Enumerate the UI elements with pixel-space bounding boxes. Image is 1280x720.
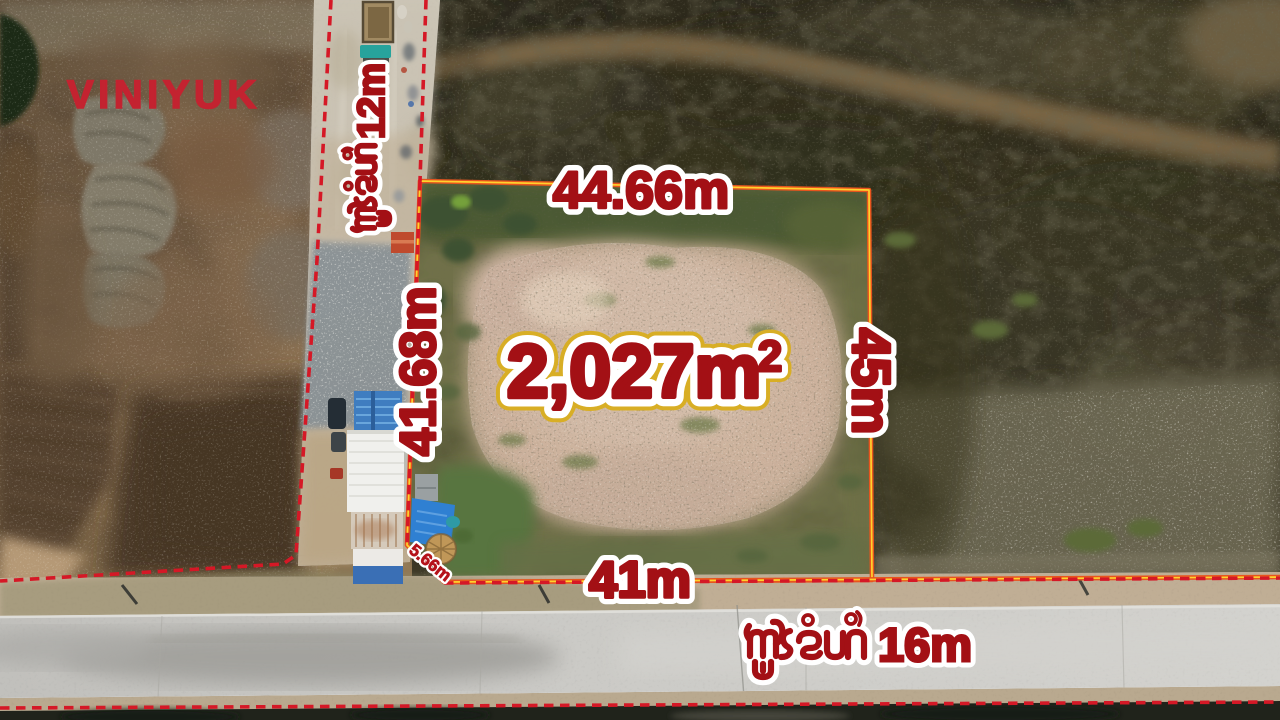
svg-text:45m: 45m [841, 328, 900, 434]
svg-text:2,027m: 2,027m [507, 329, 761, 413]
svg-text:12m: 12m [351, 63, 393, 139]
svg-text:16m: 16m [878, 618, 972, 671]
svg-text:VINIYUK: VINIYUK [67, 73, 261, 117]
svg-text:44.66m: 44.66m [553, 162, 729, 220]
svg-text:2: 2 [758, 332, 782, 381]
svg-text:41.68m: 41.68m [390, 286, 446, 456]
svg-text:41m: 41m [589, 551, 691, 608]
